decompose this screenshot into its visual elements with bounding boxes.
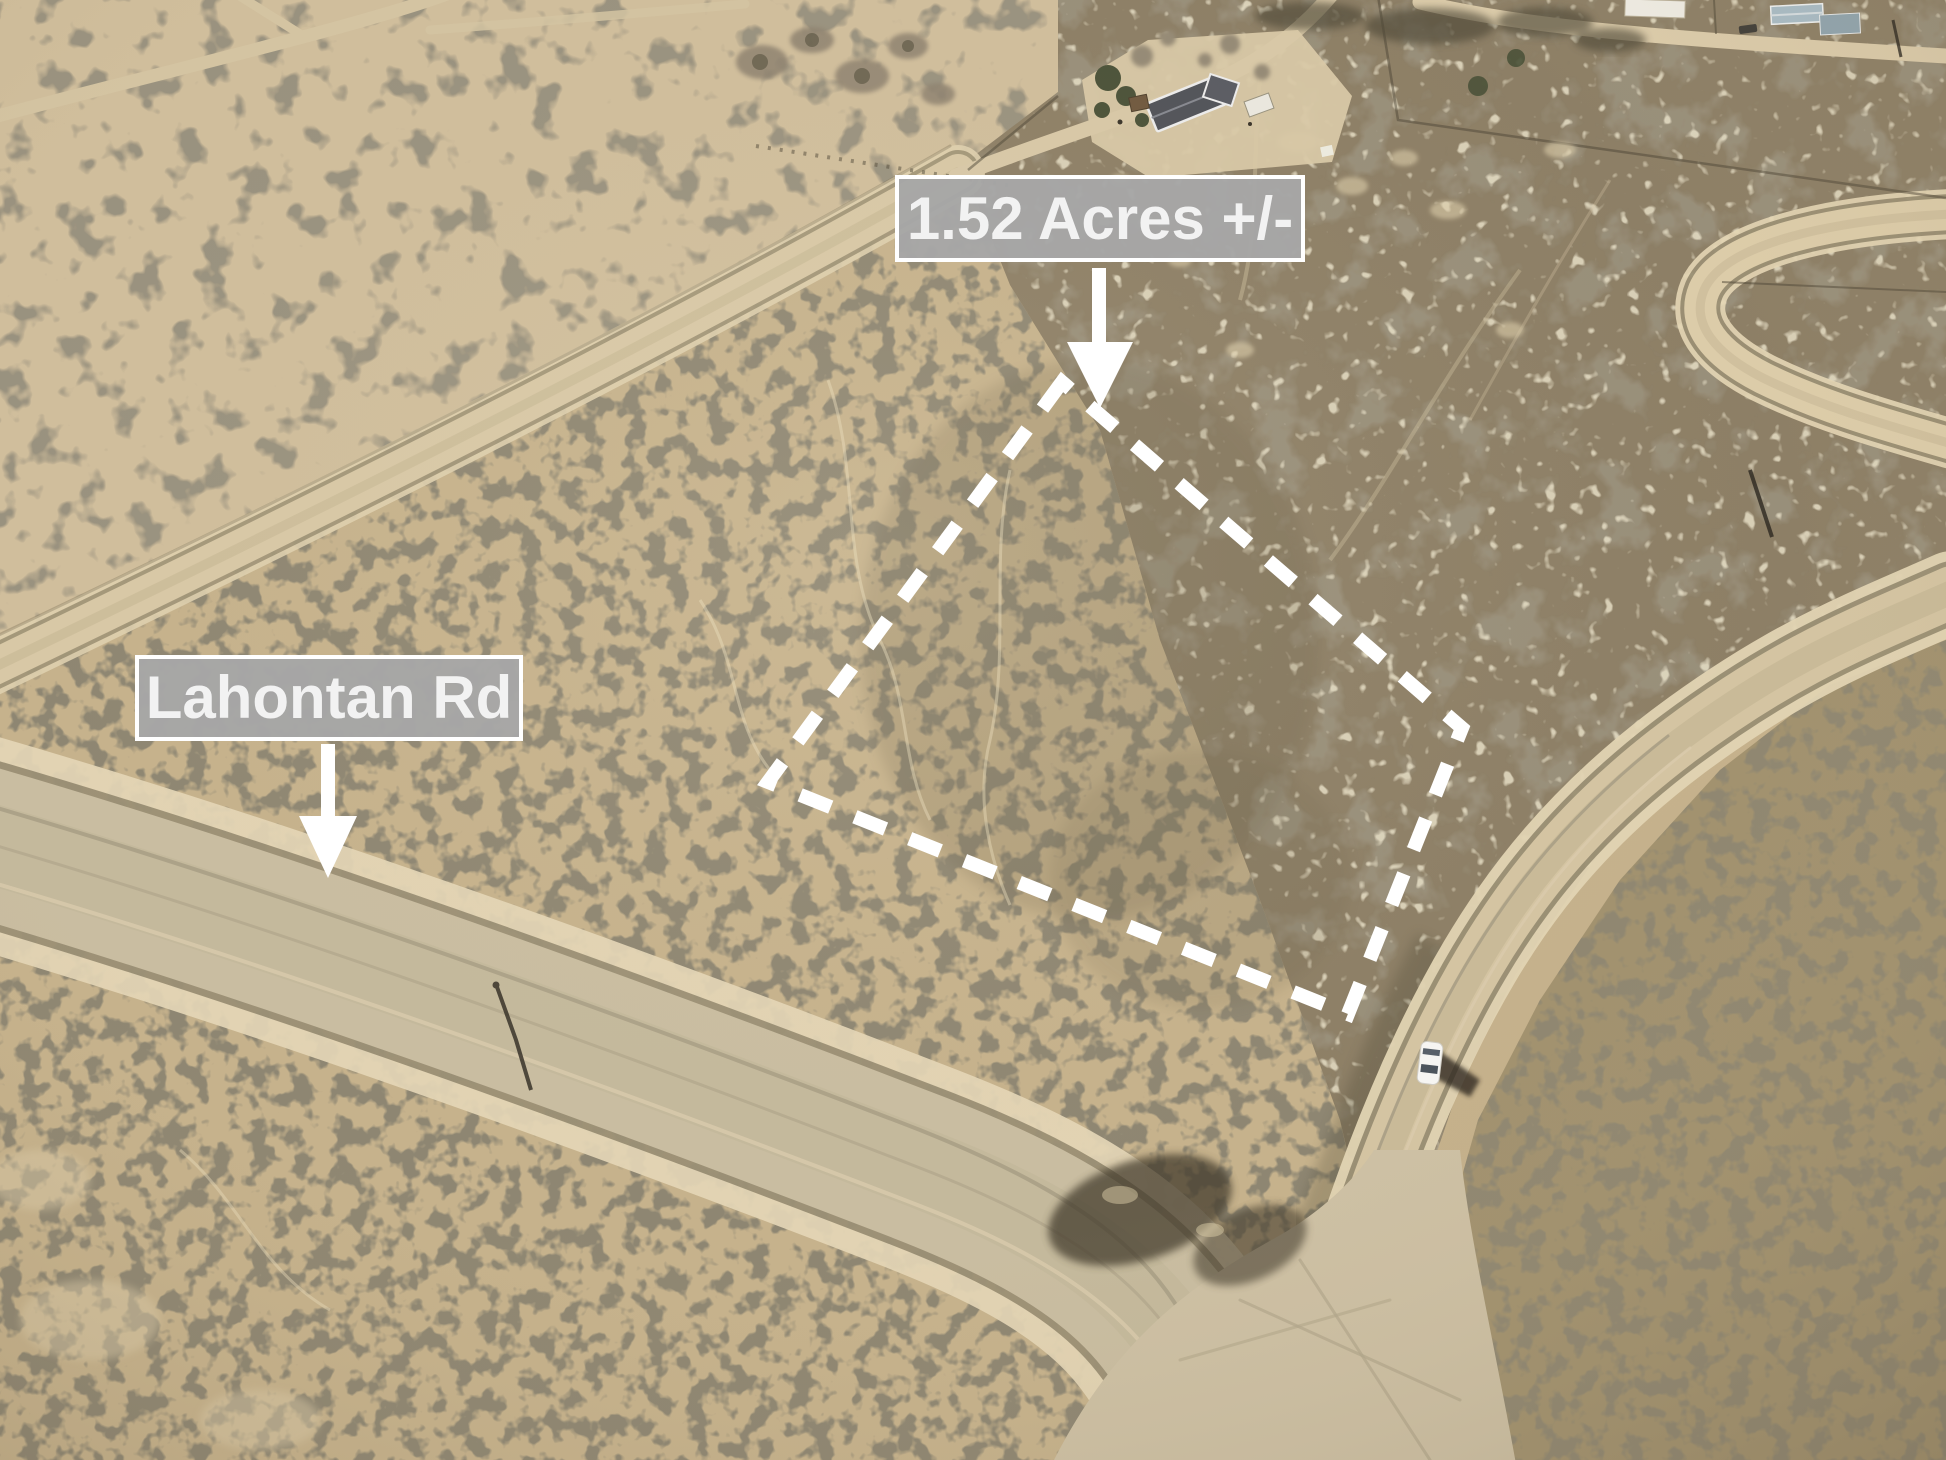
parcel-size-text: 1.52 Acres +/-: [907, 189, 1293, 249]
road-name-text: Lahontan Rd: [146, 668, 513, 728]
aerial-photo: 1.52 Acres +/- Lahontan Rd: [0, 0, 1946, 1460]
parcel-size-label: 1.52 Acres +/-: [895, 175, 1305, 262]
road-name-label: Lahontan Rd: [135, 655, 523, 741]
